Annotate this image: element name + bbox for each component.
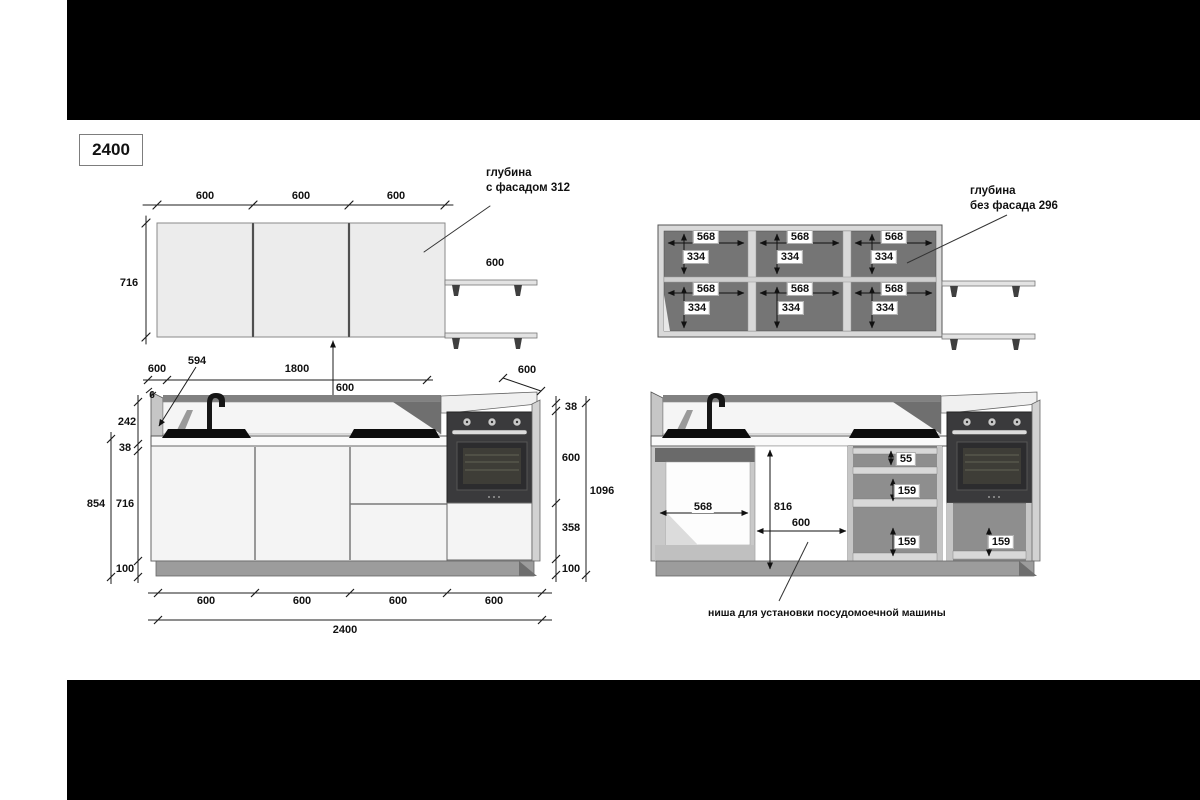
dim-backsplash-242: 242 [118, 416, 136, 428]
dim-drawer-358: 358 [562, 522, 580, 534]
dim-upper-door-width-1: 600 [196, 190, 214, 202]
note-no-facade-depth-line1: глубина [970, 184, 1016, 199]
dim-upper-door-width-2: 600 [292, 190, 310, 202]
dim-niche-height-816: 816 [772, 501, 794, 513]
dim-run-1800: 1800 [285, 363, 309, 375]
dim-inner-width-2: 568 [787, 230, 813, 244]
dim-total-width-2400: 2400 [333, 624, 357, 636]
dim-oven-drawer-159: 159 [988, 535, 1014, 549]
dim-inner-height-1: 334 [683, 250, 709, 264]
note-facade-depth-line2: с фасадом 312 [486, 181, 570, 196]
dim-side-panel-594: 594 [188, 355, 206, 367]
dim-oven-600: 600 [562, 452, 580, 464]
dim-inner-height-5: 334 [778, 301, 804, 315]
dim-upper-door-width-3: 600 [387, 190, 405, 202]
dim-upper-cabinet-height: 716 [120, 277, 138, 289]
note-facade-depth-line1: глубина [486, 166, 532, 181]
dim-module-2: 600 [293, 595, 311, 607]
dim-counter-38-left: 38 [119, 442, 131, 454]
dim-sink-inner-568: 568 [692, 501, 714, 513]
dim-right-depth-600: 600 [518, 364, 536, 376]
dim-inner-width-4: 568 [693, 282, 719, 296]
dim-inner-height-3: 334 [871, 250, 897, 264]
dim-inner-width-3: 568 [881, 230, 907, 244]
dim-inner-width-1: 568 [693, 230, 719, 244]
dim-module-3: 600 [389, 595, 407, 607]
note-no-facade-depth-line2: без фасада 296 [970, 199, 1058, 214]
dim-drawer-159a: 159 [894, 484, 920, 498]
dim-inner-height-6: 334 [872, 301, 898, 315]
dim-inner-width-6: 568 [881, 282, 907, 296]
dimension-labels: 600 600 600 716 600 глубина с фасадом 31… [0, 0, 1200, 800]
dim-niche-width-600: 600 [790, 517, 812, 529]
dim-base-total-854: 854 [87, 498, 105, 510]
dim-carcass-716: 716 [116, 498, 134, 510]
dim-counter-38-right: 38 [565, 401, 577, 413]
dishwasher-niche-caption: ниша для установки посудомоечной машины [708, 606, 946, 621]
kitchen-drawing-page: 2400 [0, 0, 1200, 800]
dim-upper-to-counter-gap: 600 [334, 382, 356, 394]
dim-drawer-159b: 159 [894, 535, 920, 549]
dim-panel-thickness-6: 6 [149, 390, 155, 402]
dim-module-1: 600 [197, 595, 215, 607]
dim-drawer-55: 55 [896, 452, 916, 466]
dim-shelf-width: 600 [486, 257, 504, 269]
dim-plinth-100-left: 100 [116, 563, 134, 575]
dim-inner-height-2: 334 [777, 250, 803, 264]
dim-inner-height-4: 334 [684, 301, 710, 315]
dim-counter-depth-600: 600 [148, 363, 166, 375]
dim-module-4: 600 [485, 595, 503, 607]
dim-inner-width-5: 568 [787, 282, 813, 296]
dim-plinth-100-right: 100 [562, 563, 580, 575]
dim-total-height-1096: 1096 [590, 485, 614, 497]
